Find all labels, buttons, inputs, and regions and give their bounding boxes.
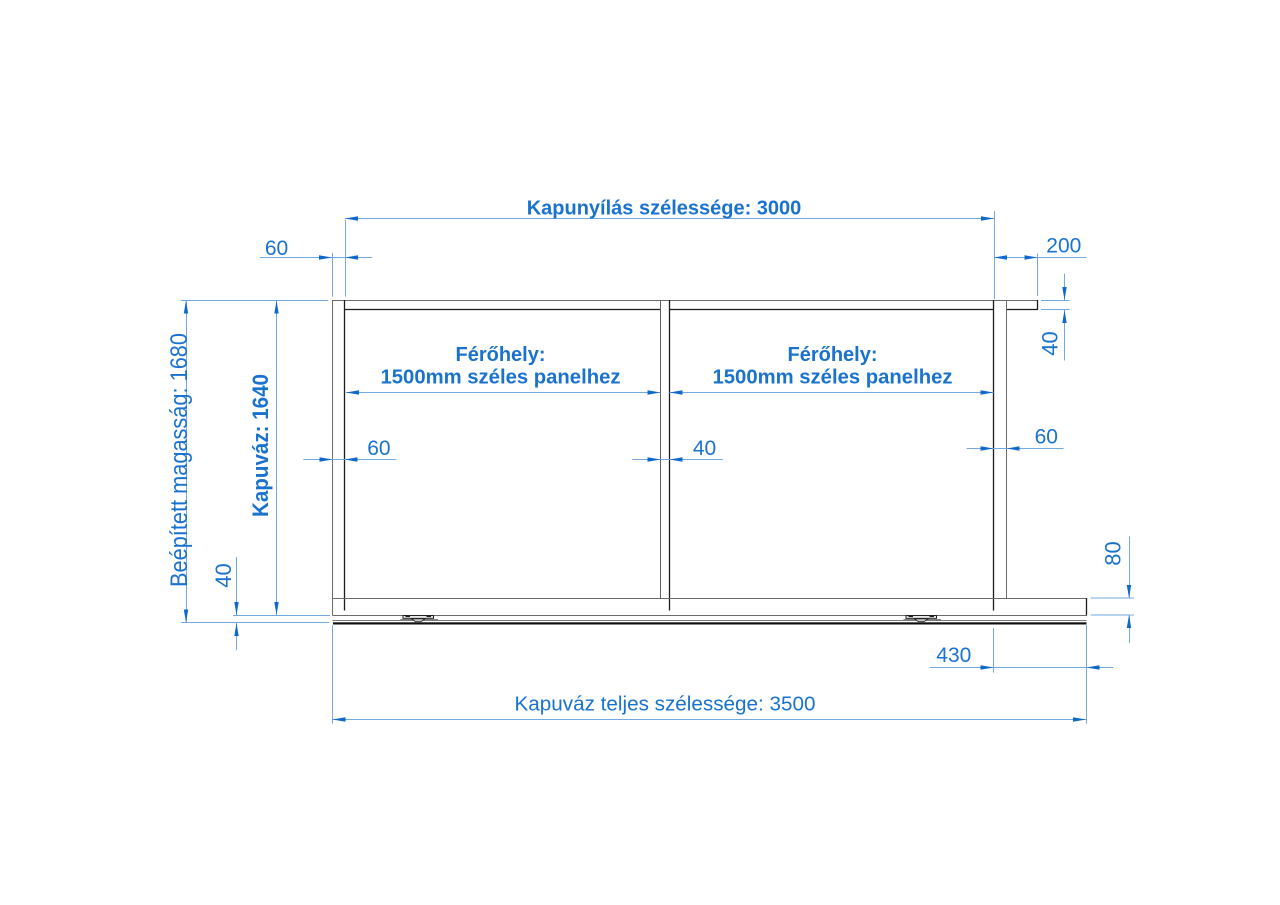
svg-text:Kapunyílás szélessége: 3000: Kapunyílás szélessége: 3000 <box>527 198 802 220</box>
svg-text:60: 60 <box>367 437 390 460</box>
svg-text:Kapuváz teljes szélessége: 350: Kapuváz teljes szélessége: 3500 <box>515 694 816 716</box>
svg-text:60: 60 <box>1035 426 1058 449</box>
svg-text:Beépített magasság: 1680: Beépített magasság: 1680 <box>166 333 193 587</box>
svg-text:Férőhely:: Férőhely: <box>455 344 545 366</box>
svg-text:1500mm széles panelhez: 1500mm széles panelhez <box>713 367 953 389</box>
svg-text:80: 80 <box>1101 541 1126 565</box>
svg-text:40: 40 <box>1038 331 1063 355</box>
svg-text:Férőhely:: Férőhely: <box>787 344 877 366</box>
svg-text:430: 430 <box>936 644 971 667</box>
svg-text:Kapuváz: 1640: Kapuváz: 1640 <box>248 374 273 517</box>
svg-text:1500mm széles panelhez: 1500mm széles panelhez <box>381 367 621 389</box>
svg-text:60: 60 <box>265 237 288 260</box>
svg-text:200: 200 <box>1046 235 1081 258</box>
svg-text:40: 40 <box>211 563 236 587</box>
svg-text:40: 40 <box>693 437 716 460</box>
